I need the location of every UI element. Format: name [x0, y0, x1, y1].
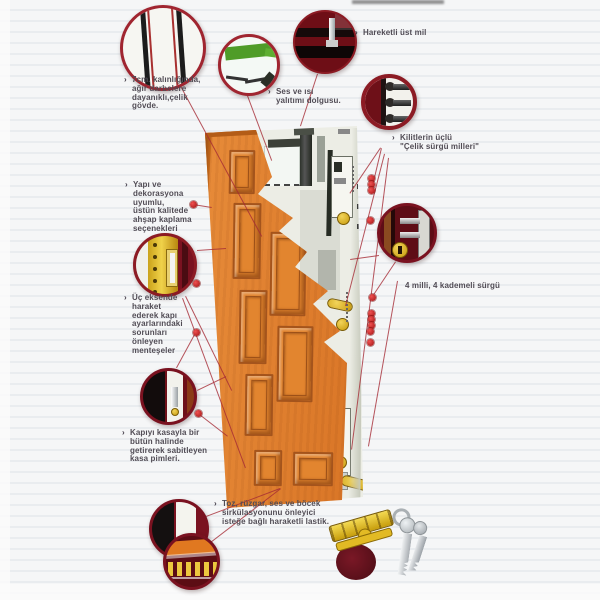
steel-channel — [300, 132, 312, 186]
leader-line — [368, 281, 398, 446]
detail-circle-rubber-seal — [163, 533, 220, 590]
mid-bracket — [318, 250, 336, 290]
callout-marker-dot — [368, 187, 375, 194]
lock-slot — [334, 162, 342, 172]
label-steel-body: ›7cm. kalınlığında, ağır darbelere dayan… — [124, 76, 208, 111]
label-hinges: ›Üç eksende haraket ederek kapı ayarları… — [124, 294, 204, 356]
keyhole-upper — [337, 212, 350, 225]
door-panel — [232, 203, 261, 279]
callout-marker-dot — [367, 217, 374, 224]
detail-circle-steel-bolt-pins — [361, 74, 417, 130]
detail-circle-hinge — [133, 233, 197, 297]
arrow-bullet-icon: › — [124, 76, 127, 85]
top-edge-detail — [338, 129, 350, 134]
label-frame-pins: ›Kapıyı kasayla bir bütün halinde getire… — [122, 429, 236, 464]
callout-marker-dot — [367, 339, 374, 346]
scan-margin-bottom — [0, 584, 600, 600]
label-top-mil: ›Hareketli üst mil — [355, 29, 465, 38]
arrow-bullet-icon: › — [268, 88, 271, 97]
bolt-end — [357, 184, 365, 189]
detail-circle-multi-stage-lock — [377, 203, 437, 263]
door-panel — [254, 450, 282, 486]
arrow-bullet-icon: › — [392, 134, 395, 143]
callout-marker-dot — [193, 280, 200, 287]
callout-marker-dot — [369, 294, 376, 301]
scan-margin-left — [0, 0, 10, 600]
lock-slot2 — [334, 178, 346, 184]
arrow-bullet-icon: › — [125, 181, 128, 190]
callout-marker-dot — [367, 328, 374, 335]
detail-circle-frame-pin — [140, 368, 197, 425]
callout-marker-dot — [190, 201, 197, 208]
steel-rail — [317, 136, 325, 182]
cropped-text-fragment — [352, 0, 444, 4]
bolt-end2 — [357, 204, 365, 209]
label-wood-veneer: ›Yapı ve dekorasyona uyumlu, üstün kalit… — [125, 181, 209, 234]
door-panel — [293, 452, 333, 487]
top-mil-housing — [294, 128, 314, 136]
arrow-bullet-icon: › — [355, 29, 358, 38]
door-panel — [238, 290, 267, 364]
door-panel — [229, 150, 256, 194]
arrow-bullet-icon: › — [122, 429, 125, 438]
label-four-stage-bolt: 4 milli, 4 kademeli sürgü — [405, 282, 535, 291]
scanned-brochure-page: ›7cm. kalınlığında, ağır darbelere dayan… — [0, 0, 600, 600]
label-insulation: ›Ses ve ısı yalıtımı dolgusu. — [268, 88, 362, 106]
door-panel — [276, 326, 313, 402]
arrow-bullet-icon: › — [124, 294, 127, 303]
door-panel — [245, 374, 274, 436]
label-rubber-seal: ›Toz, rüzgar, ses ve böcek sirkülasyonun… — [214, 500, 348, 526]
callout-marker-dot — [193, 329, 200, 336]
detail-circle-top-pivot-mil — [293, 10, 357, 74]
label-bolt-pins: ›Kilitlerin üçlü "Çelik sürgü milleri" — [392, 134, 508, 152]
callout-marker-dot — [195, 410, 202, 417]
arrow-bullet-icon: › — [214, 500, 217, 509]
